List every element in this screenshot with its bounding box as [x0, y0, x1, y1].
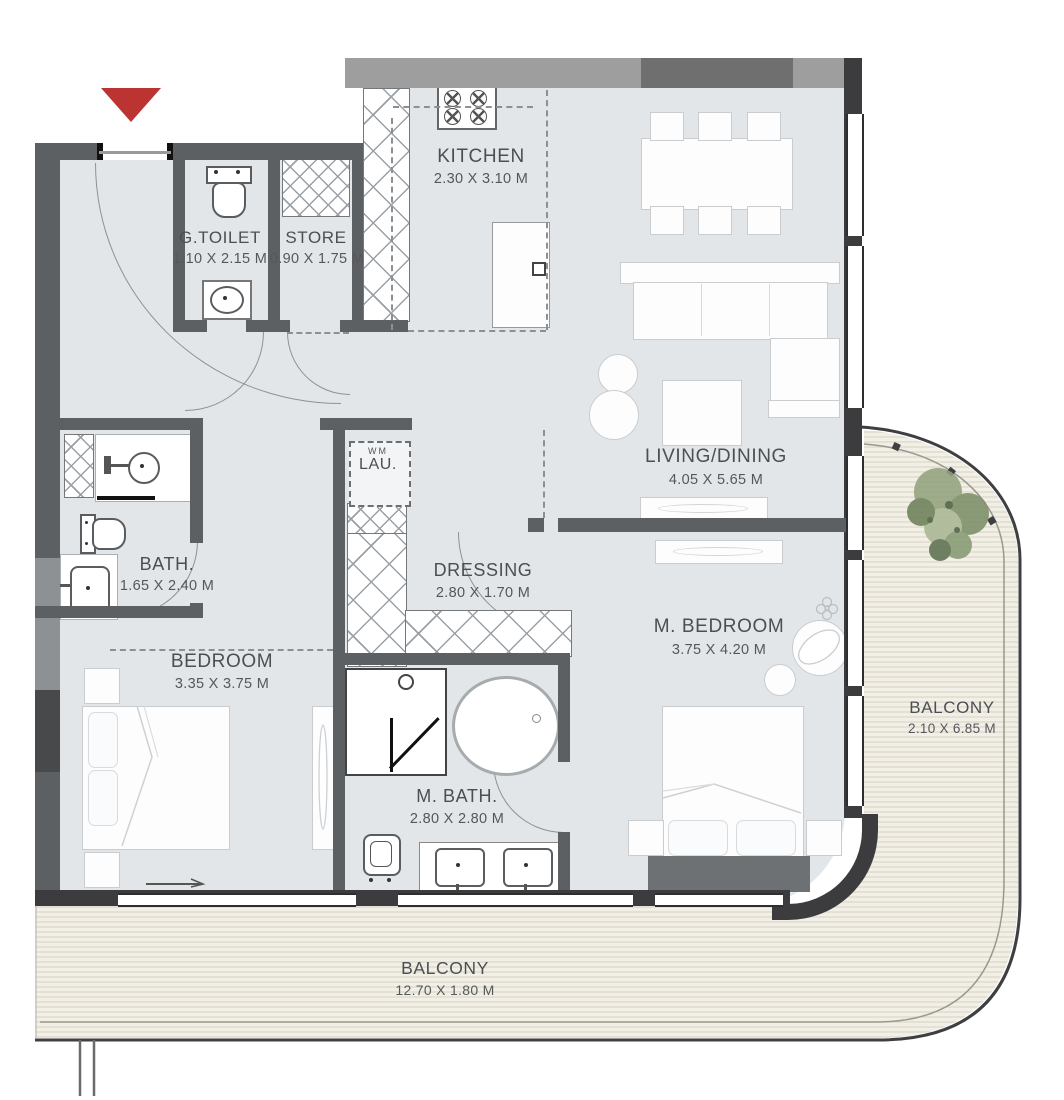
- wall-segment: [268, 160, 280, 332]
- window: [655, 893, 783, 907]
- window: [846, 114, 864, 236]
- window: [398, 893, 633, 907]
- dim-kitchen: 2.30 X 3.10 M: [434, 171, 528, 187]
- wall-segment: [333, 428, 345, 665]
- wall-left-exterior: [35, 160, 60, 906]
- bedside-table: [628, 820, 664, 856]
- dining-chair: [650, 112, 684, 141]
- cabinet-hatch-kitchen: [363, 88, 410, 322]
- label-bath: BATH.: [140, 554, 195, 575]
- sofa-chaise-foot: [768, 400, 840, 418]
- sink-drain: [524, 863, 528, 867]
- toilet-button: [214, 170, 218, 174]
- wall-segment: [280, 320, 290, 332]
- sink-drain: [86, 586, 90, 590]
- wall-segment: [558, 518, 862, 532]
- shower-icon: [128, 452, 160, 484]
- sink-icon: [435, 848, 485, 887]
- tub-drain: [532, 714, 541, 723]
- window: [118, 893, 356, 907]
- wall-segment: [35, 606, 203, 618]
- sofa-seat: [633, 282, 828, 340]
- dash-boundary-store: [287, 332, 349, 334]
- dining-chair: [698, 112, 732, 141]
- wall-segment: [352, 143, 363, 332]
- dining-chair: [650, 206, 684, 235]
- entry-threshold: [99, 151, 171, 154]
- wall-left-dark: [35, 690, 60, 772]
- dining-table: [641, 138, 793, 210]
- shower-head-icon: [398, 674, 414, 690]
- dining-chair: [747, 206, 781, 235]
- window: [846, 246, 864, 408]
- column-hatch-bath: [64, 434, 94, 498]
- label-kitchen: KITCHEN: [437, 146, 525, 168]
- label-mbath: M. BATH.: [416, 786, 497, 807]
- wall-top-dark: [641, 58, 793, 88]
- dash-boundary-kitchen-left: [391, 118, 393, 330]
- sofa-cushion-line: [701, 284, 702, 336]
- shower-drain: [140, 464, 144, 468]
- burner-icon: [444, 90, 461, 107]
- dining-chair: [747, 112, 781, 141]
- wall-segment: [185, 143, 363, 160]
- shower-curb: [97, 496, 155, 500]
- armchair: [598, 354, 638, 394]
- wall-segment: [246, 320, 280, 332]
- sofa-back: [620, 262, 840, 284]
- sofa-cushion-line: [769, 284, 770, 336]
- toilet-icon: [92, 518, 126, 550]
- label-store: STORE: [285, 228, 346, 248]
- wall-left-light: [35, 558, 60, 690]
- wall-segment: [35, 143, 97, 160]
- toilet-button: [85, 542, 88, 545]
- closet-hatch-store: [282, 155, 350, 217]
- dim-store: 0.90 X 1.75 M: [270, 251, 364, 267]
- toilet-button: [387, 878, 391, 882]
- dim-bedroom: 3.35 X 3.75 M: [175, 676, 269, 692]
- pillow: [88, 770, 118, 826]
- sink-drain: [223, 296, 227, 300]
- stool: [764, 664, 796, 696]
- armchair: [589, 390, 639, 440]
- label-balcony-side: BALCONY: [909, 698, 994, 718]
- pillow: [668, 820, 728, 856]
- wardrobe-hatch-vertical: [347, 533, 407, 667]
- dim-living-dining: 4.05 X 5.65 M: [669, 472, 763, 488]
- dim-mbath: 2.80 X 2.80 M: [410, 811, 504, 827]
- wall-segment: [558, 832, 570, 890]
- sink-icon: [503, 848, 553, 887]
- dash-boundary-kitchen-bottom: [408, 330, 546, 332]
- dim-balcony-bottom: 12.70 X 1.80 M: [395, 982, 494, 998]
- dim-dressing: 2.80 X 1.70 M: [436, 585, 530, 601]
- toilet-inner: [370, 841, 392, 867]
- burner-icon: [470, 90, 487, 107]
- bathtub-icon: [452, 676, 560, 776]
- toilet-icon: [212, 182, 246, 218]
- label-bedroom: BEDROOM: [171, 651, 273, 673]
- wall-segment: [363, 320, 408, 332]
- dining-chair: [698, 206, 732, 235]
- window: [846, 456, 864, 550]
- toilet-button: [369, 878, 373, 882]
- console-lens: [658, 504, 748, 513]
- wall-segment: [528, 518, 544, 532]
- dim-bath: 1.65 X 2.40 M: [120, 578, 214, 594]
- armchair: [792, 620, 848, 676]
- window: [846, 560, 864, 686]
- sofa-chaise: [770, 338, 840, 404]
- wall-segment: [185, 320, 207, 332]
- label-living-dining: LIVING/DINING: [645, 446, 787, 468]
- island-hob: [532, 262, 546, 276]
- toilet-button: [236, 170, 240, 174]
- coffee-table: [662, 380, 742, 446]
- console-lens: [673, 547, 763, 556]
- wardrobe-hatch-small: [347, 503, 407, 535]
- sink-basin: [210, 286, 244, 314]
- wall-segment: [190, 418, 203, 543]
- label-laundry: LAU.: [359, 456, 397, 474]
- dash-boundary-dressing-living: [543, 430, 545, 518]
- sink-drain: [456, 863, 460, 867]
- shower-arm: [110, 464, 130, 467]
- bedside-table: [84, 852, 120, 888]
- dim-gtoilet: 1.10 X 2.15 M: [173, 251, 267, 267]
- faucet: [60, 584, 70, 587]
- dash-boundary-counter: [393, 106, 533, 108]
- shower-valve: [104, 456, 111, 474]
- label-laundry-tag: WM: [368, 446, 388, 456]
- label-balcony-bottom: BALCONY: [401, 958, 489, 979]
- wall-segment: [558, 665, 570, 762]
- burner-icon: [444, 108, 461, 125]
- wall-segment: [35, 418, 203, 430]
- entrance-marker: [101, 88, 161, 122]
- wardrobe-hatch-horizontal: [405, 610, 572, 657]
- wall-segment: [333, 653, 570, 665]
- label-dressing: DRESSING: [434, 560, 533, 581]
- floor-plan-canvas: KITCHEN 2.30 X 3.10 M G.TOILET 1.10 X 2.…: [0, 0, 1064, 1100]
- burner-icon: [470, 108, 487, 125]
- label-gtoilet: G.TOILET: [179, 228, 261, 248]
- wall-segment: [340, 320, 363, 332]
- dash-boundary-kitchen-right: [546, 90, 548, 330]
- window: [846, 696, 864, 806]
- toilet-button: [85, 521, 88, 524]
- dim-balcony-side: 2.10 X 6.85 M: [908, 721, 996, 736]
- wall-segment: [333, 665, 345, 890]
- dim-mbedroom: 3.75 X 4.20 M: [672, 642, 766, 658]
- bedside-table: [84, 668, 120, 704]
- pillow: [88, 712, 118, 768]
- label-mbedroom: M. BEDROOM: [654, 616, 785, 638]
